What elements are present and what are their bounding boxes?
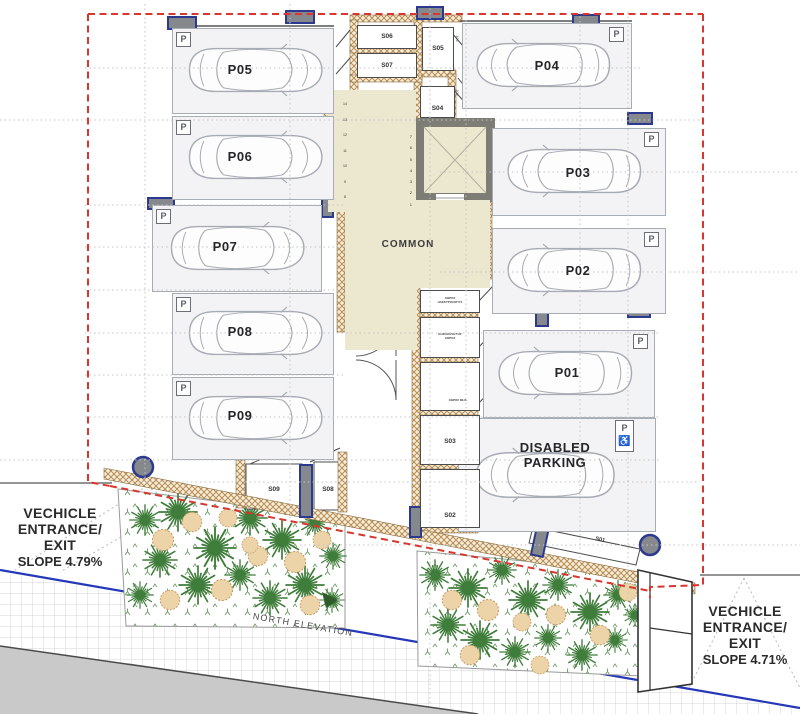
common-area-lower: [345, 288, 417, 350]
storage-label: S04: [421, 105, 454, 112]
entrance-left-note: VECHICLE ENTRANCE/ EXIT SLOPE 4.79%: [0, 505, 120, 570]
disabled-line1: DISABLED: [475, 440, 635, 455]
stall-label: P05: [205, 62, 275, 77]
parking-sign-icon: P: [176, 297, 191, 312]
storage-room-s06: S06: [357, 25, 417, 49]
slope-direction-triangles: [15, 486, 800, 690]
parking-sign-icon: P: [156, 209, 171, 224]
entrance-right-line3: EXIT: [690, 635, 800, 651]
stall-label: P06: [205, 149, 275, 164]
disabled-parking-label: DISABLED PARKING: [475, 440, 635, 470]
storage-label: S02: [421, 512, 479, 519]
stall-label: P07: [190, 239, 260, 254]
storage-label: S09: [250, 486, 298, 493]
storage-room-s05: S05: [422, 27, 454, 71]
ramp-structure: [638, 570, 692, 692]
plant-shrub-icons: [152, 509, 637, 674]
door-tag: 102: [455, 35, 460, 42]
stair-numbers-left: 1413 1211 109 8: [336, 97, 354, 206]
parking-sign-icon: P: [609, 27, 624, 42]
storage-label: S01: [595, 536, 635, 550]
utility-label: ΚΟΙΝΟΧΡΗΣΤΟΣΧΩΡΟΣ: [421, 333, 479, 340]
storage-label: S06: [358, 33, 416, 40]
common-area-label: COMMON: [368, 239, 448, 250]
utility-room-2: ΚΟΙΝΟΧΡΗΣΤΟΣΧΩΡΟΣ: [420, 317, 480, 358]
entrance-left-slope: SLOPE 4.79%: [0, 553, 120, 570]
storage-label: S03: [421, 438, 479, 445]
entrance-left-line3: EXIT: [0, 537, 120, 553]
storage-room-s04: S04: [420, 86, 455, 118]
slope-gray-area: [0, 646, 478, 714]
utility-room-1: ΧΩΡΟΣΗΛΕΚΤΡΟΛΟΓΟΥ: [420, 290, 480, 313]
slope-edge-line: [0, 646, 478, 714]
stall-label: P02: [543, 263, 613, 278]
disabled-line2: PARKING: [475, 455, 635, 470]
stall-label: P08: [205, 324, 275, 339]
garden-bed-left: [118, 489, 345, 628]
elevator-shaft: [415, 118, 495, 202]
entrance-right-slope: SLOPE 4.71%: [690, 651, 800, 668]
storage-room-s07: S07: [357, 53, 417, 78]
parking-sign-icon: P: [176, 32, 191, 47]
parking-sign-icon: P: [176, 381, 191, 396]
parking-sign-icon: P: [644, 232, 659, 247]
entrance-right-line1: VECHICLE: [690, 603, 800, 619]
entrance-right-note: VECHICLE ENTRANCE/ EXIT SLOPE 4.71%: [690, 603, 800, 668]
stall-label: P04: [512, 58, 582, 73]
utility-room-3: ΧΩΡΟΣ ΜΗΧ.: [420, 362, 480, 411]
utility-label: ΧΩΡΟΣΗΛΕΚΤΡΟΛΟΓΟΥ: [421, 297, 479, 304]
disabled-parking-sign-icon: P ♿: [615, 420, 634, 452]
parking-sign-icon: P: [644, 132, 659, 147]
storage-room-s02: S02: [420, 469, 480, 528]
stall-label: P09: [205, 408, 275, 423]
storage-label: S08: [312, 486, 344, 493]
parking-sign-icon: P: [633, 334, 648, 349]
road-surface: [0, 572, 800, 714]
storage-label: S07: [358, 62, 416, 69]
parking-floor-plan: P05 P06 P07 P08 P09 P04 P03 P02 P01 DISA…: [0, 0, 800, 714]
entrance-left-line2: ENTRANCE/: [0, 521, 120, 537]
wheelchair-icon: ♿: [616, 435, 633, 449]
road-blue-line: [0, 570, 800, 708]
stair-numbers-right: 76 54 32 1: [398, 131, 412, 210]
storage-room-s03: S03: [420, 415, 480, 465]
storage-label: S05: [423, 45, 453, 52]
entrance-left-line1: VECHICLE: [0, 505, 120, 521]
stall-label: P03: [543, 165, 613, 180]
north-elevation-label: NORTH ELEVATION: [252, 611, 382, 643]
parking-sign-letter: P: [616, 421, 633, 435]
stall-label: P01: [532, 365, 602, 380]
utility-label: ΧΩΡΟΣ ΜΗΧ.: [439, 399, 477, 403]
entrance-right-line2: ENTRANCE/: [690, 619, 800, 635]
garden-bed-right: [417, 551, 643, 676]
plant-dark-accent: [322, 592, 338, 608]
parking-sign-icon: P: [176, 120, 191, 135]
door-tag: 102: [455, 89, 460, 96]
